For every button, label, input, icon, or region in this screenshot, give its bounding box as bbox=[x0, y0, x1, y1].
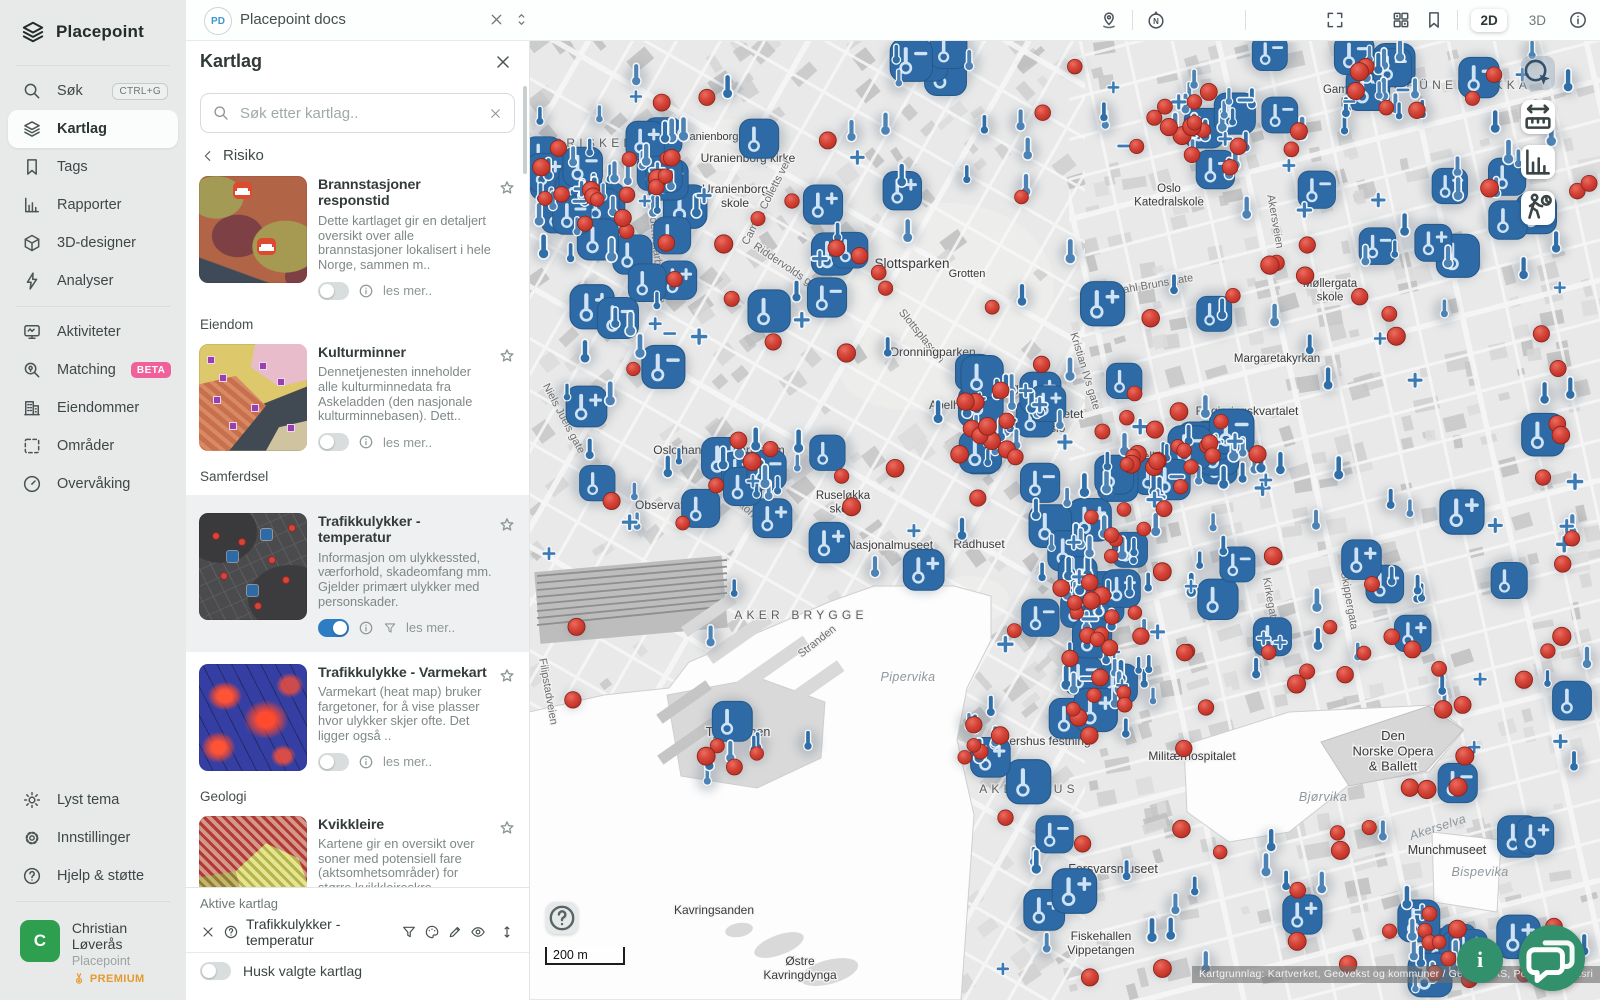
accident-marker-badge[interactable] bbox=[803, 185, 842, 224]
accident-marker-dot[interactable] bbox=[1261, 645, 1276, 660]
accident-marker-dot[interactable] bbox=[1128, 606, 1142, 620]
info-icon[interactable] bbox=[1568, 10, 1588, 30]
remove-layer-icon[interactable] bbox=[200, 924, 216, 940]
accident-marker-dot[interactable] bbox=[1515, 671, 1532, 688]
sidebar-item-matching[interactable]: MatchingBETA bbox=[8, 351, 178, 389]
accident-marker-dot[interactable] bbox=[533, 159, 550, 176]
active-layer-row[interactable]: Trafikkulykker - temperatur bbox=[200, 919, 515, 945]
accident-marker-dot[interactable] bbox=[1184, 460, 1199, 475]
accident-marker-dot[interactable] bbox=[1284, 142, 1299, 157]
accident-marker-badge[interactable] bbox=[1491, 562, 1527, 598]
accident-marker-badge[interactable] bbox=[642, 345, 685, 388]
accident-marker-badge[interactable] bbox=[1022, 599, 1059, 636]
accident-marker-dot[interactable] bbox=[1035, 105, 1051, 121]
accident-marker-dot[interactable] bbox=[1153, 960, 1171, 978]
sidebar-item-label: Kartlag bbox=[57, 121, 107, 137]
accident-marker-dot[interactable] bbox=[1081, 727, 1098, 744]
accident-marker-dot[interactable] bbox=[1290, 882, 1306, 898]
accident-marker-dot[interactable] bbox=[1156, 501, 1172, 517]
accident-marker-badge[interactable] bbox=[1052, 869, 1096, 913]
accident-marker-dot[interactable] bbox=[1213, 845, 1227, 859]
accident-marker-badge[interactable] bbox=[1252, 40, 1287, 71]
accident-marker-dot[interactable] bbox=[622, 152, 637, 167]
accident-marker-dot[interactable] bbox=[1550, 360, 1566, 376]
accident-marker-dot[interactable] bbox=[554, 187, 570, 203]
accident-marker-dot[interactable] bbox=[1350, 63, 1368, 81]
info-fab[interactable]: i bbox=[1457, 937, 1503, 983]
accident-marker-dot[interactable] bbox=[1142, 309, 1160, 327]
accident-marker-dot[interactable] bbox=[1288, 932, 1306, 950]
accident-marker-dot[interactable] bbox=[1401, 779, 1418, 796]
accident-marker-badge[interactable] bbox=[807, 278, 846, 317]
accident-marker-dot[interactable] bbox=[1127, 386, 1142, 401]
accident-marker-dot[interactable] bbox=[1362, 820, 1376, 834]
layer-card-wrap: Trafikkulykke - VarmekartVarmekart (heat… bbox=[186, 664, 529, 773]
category-label: Risiko bbox=[223, 147, 264, 164]
workspace-chip[interactable]: PD Placepoint docs bbox=[186, 0, 530, 40]
accident-marker-badge[interactable] bbox=[809, 522, 849, 562]
accident-marker-dot[interactable] bbox=[578, 216, 593, 231]
print-icon[interactable]: undefined bbox=[1259, 10, 1279, 30]
svg-text:Katedralskole: Katedralskole bbox=[1134, 197, 1204, 209]
accident-marker-dot[interactable] bbox=[1119, 410, 1134, 425]
accident-marker-dot[interactable] bbox=[979, 417, 997, 435]
divider bbox=[16, 65, 170, 66]
toggle-knob bbox=[320, 284, 334, 298]
les-mer-link[interactable]: les mer.. bbox=[383, 754, 432, 769]
accident-marker-badge[interactable] bbox=[753, 499, 792, 538]
accident-marker-dot[interactable] bbox=[1387, 327, 1405, 345]
avatar[interactable]: C bbox=[20, 920, 60, 962]
panel-title: Kartlag bbox=[200, 51, 262, 72]
accident-marker-dot[interactable] bbox=[667, 271, 683, 287]
sidebar-item-aktiviteter[interactable]: Aktiviteter bbox=[8, 313, 178, 351]
accident-marker-dot[interactable] bbox=[614, 209, 631, 226]
accident-marker-badge[interactable] bbox=[1553, 681, 1592, 720]
eye-icon[interactable] bbox=[470, 924, 486, 940]
accident-marker-dot[interactable] bbox=[1067, 59, 1082, 74]
accident-marker-dot[interactable] bbox=[1290, 123, 1307, 140]
workspace-avatar[interactable]: PD bbox=[204, 7, 232, 35]
accident-marker-dot[interactable] bbox=[1214, 414, 1229, 429]
accident-marker-dot[interactable] bbox=[1066, 702, 1080, 716]
accident-marker-dot[interactable] bbox=[676, 516, 690, 530]
pencil-icon[interactable] bbox=[447, 924, 463, 940]
accident-marker-badge[interactable] bbox=[1081, 282, 1125, 326]
accident-marker-dot[interactable] bbox=[1249, 446, 1266, 463]
clear-icon[interactable] bbox=[488, 106, 503, 121]
filter-icon[interactable] bbox=[401, 924, 417, 940]
accident-marker-dot[interactable] bbox=[1198, 700, 1214, 716]
category-back[interactable]: Risiko bbox=[200, 147, 515, 164]
accident-marker-badge[interactable] bbox=[748, 290, 790, 332]
layer-toggle[interactable] bbox=[318, 753, 349, 771]
qr-grid-icon[interactable] bbox=[1391, 10, 1411, 30]
sidebar-item-hjelp[interactable]: Hjelp & støtte bbox=[8, 857, 178, 895]
unfold-icon[interactable] bbox=[513, 11, 530, 28]
snapshot-icon[interactable]: undefined bbox=[1358, 10, 1378, 30]
accident-marker-dot[interactable] bbox=[1299, 237, 1315, 253]
accident-marker-dot[interactable] bbox=[1104, 528, 1119, 543]
accident-marker-dot[interactable] bbox=[1007, 624, 1021, 638]
layer-card[interactable]: Brannstasjoner responstidDette kartlaget… bbox=[199, 176, 516, 301]
user-plan-label: PREMIUM bbox=[90, 973, 145, 985]
accident-marker-dot[interactable] bbox=[724, 291, 739, 306]
les-mer-link[interactable]: les mer.. bbox=[406, 620, 455, 635]
user-profile[interactable]: C Christian Løverås Placepoint PREMIUM bbox=[0, 908, 186, 986]
fullscreen-icon[interactable] bbox=[1325, 10, 1345, 30]
accident-marker-dot[interactable] bbox=[1173, 479, 1188, 494]
toggle-knob bbox=[320, 435, 334, 449]
reorder-icon[interactable] bbox=[499, 924, 515, 940]
accident-marker-dot[interactable] bbox=[1184, 147, 1200, 163]
accident-marker-dot[interactable] bbox=[751, 211, 765, 225]
accident-marker-dot[interactable] bbox=[1205, 448, 1220, 463]
accident-marker-dot[interactable] bbox=[619, 187, 635, 203]
accident-marker-dot[interactable] bbox=[1357, 646, 1371, 660]
accident-marker-dot[interactable] bbox=[991, 727, 1009, 745]
accident-marker-dot[interactable] bbox=[1146, 421, 1163, 438]
accident-marker-dot[interactable] bbox=[1170, 403, 1188, 421]
accident-marker-dot[interactable] bbox=[603, 492, 620, 509]
map-label: Bispevika bbox=[1451, 865, 1508, 879]
accident-marker-dot[interactable] bbox=[763, 441, 778, 456]
accident-marker-dot[interactable] bbox=[1441, 951, 1456, 966]
accident-marker-dot[interactable] bbox=[1153, 563, 1171, 581]
accident-marker-dot[interactable] bbox=[730, 432, 747, 449]
sidebar-item-label: Tags bbox=[57, 159, 88, 175]
accident-marker-dot[interactable] bbox=[970, 490, 986, 506]
accident-marker-dot[interactable] bbox=[1081, 574, 1098, 591]
sidebar-item-overvaking[interactable]: Overvåking bbox=[8, 465, 178, 503]
compass-icon[interactable]: N bbox=[1146, 10, 1166, 30]
mode-3d-button[interactable]: 3D bbox=[1520, 9, 1555, 32]
accident-marker-dot[interactable] bbox=[1117, 697, 1132, 712]
accident-marker-dot[interactable] bbox=[1092, 669, 1109, 686]
search-icon bbox=[22, 81, 42, 101]
sidebar-item-label: Søk bbox=[57, 83, 83, 99]
close-icon[interactable] bbox=[493, 52, 513, 72]
accident-marker-dot[interactable] bbox=[1382, 924, 1396, 938]
accident-marker-dot[interactable] bbox=[1200, 83, 1217, 100]
accident-marker-badge[interactable] bbox=[1198, 579, 1238, 619]
accident-marker-dot[interactable] bbox=[1160, 118, 1177, 135]
accident-marker-dot[interactable] bbox=[1173, 820, 1191, 838]
accident-marker-dot[interactable] bbox=[1081, 969, 1098, 986]
accident-marker-dot[interactable] bbox=[697, 747, 715, 765]
accident-marker-dot[interactable] bbox=[1137, 522, 1151, 536]
locate-icon[interactable] bbox=[1099, 10, 1119, 30]
accident-marker-dot[interactable] bbox=[1176, 644, 1193, 661]
accident-marker-dot[interactable] bbox=[998, 810, 1014, 826]
accident-marker-dot[interactable] bbox=[1261, 256, 1279, 274]
map-canvas[interactable]: BRISKEBYUranienborgparkenUranienborg kir… bbox=[529, 40, 1600, 1000]
sidebar-item-analyser[interactable]: Analyser bbox=[8, 262, 178, 300]
accident-marker-dot[interactable] bbox=[1067, 595, 1082, 610]
map-help-button[interactable] bbox=[546, 902, 578, 934]
accident-marker-dot[interactable] bbox=[1432, 935, 1446, 949]
accident-marker-dot[interactable] bbox=[765, 334, 781, 350]
accident-marker-dot[interactable] bbox=[871, 265, 886, 280]
accident-marker-dot[interactable] bbox=[1481, 179, 1499, 197]
accident-dot bbox=[255, 603, 261, 609]
user-plan: PREMIUM bbox=[72, 972, 176, 986]
accident-marker-dot[interactable] bbox=[1351, 288, 1367, 304]
accident-marker-dot[interactable] bbox=[1226, 288, 1241, 303]
accident-marker-dot[interactable] bbox=[743, 453, 761, 471]
accident-marker-dot[interactable] bbox=[1187, 95, 1202, 110]
sidebar-item-tags[interactable]: Tags bbox=[8, 148, 178, 186]
accident-marker-dot[interactable] bbox=[1133, 628, 1149, 644]
accident-marker-dot[interactable] bbox=[1033, 356, 1049, 372]
accident-marker-dot[interactable] bbox=[1090, 632, 1105, 647]
accident-marker-dot[interactable] bbox=[1149, 453, 1165, 469]
accident-marker bbox=[261, 529, 272, 540]
accident-marker-dot[interactable] bbox=[1418, 780, 1436, 798]
heritage-marker bbox=[277, 378, 285, 386]
mode-2d-button[interactable]: 2D bbox=[1471, 9, 1506, 32]
accident-marker-dot[interactable] bbox=[658, 235, 675, 252]
accident-marker-dot[interactable] bbox=[992, 382, 1009, 399]
accident-marker-dot[interactable] bbox=[590, 193, 604, 207]
accident-marker-dot[interactable] bbox=[1176, 740, 1192, 756]
chat-fab[interactable] bbox=[1519, 925, 1585, 991]
accident-marker-dot[interactable] bbox=[951, 445, 969, 463]
accident-marker-badge[interactable] bbox=[930, 40, 967, 69]
layer-card[interactable]: Trafikkulykke - VarmekartVarmekart (heat… bbox=[199, 664, 516, 773]
accident-marker-dot[interactable] bbox=[785, 194, 800, 209]
zoom-out-icon[interactable]: undefined bbox=[1212, 10, 1232, 30]
favorite-star-icon[interactable] bbox=[498, 347, 516, 365]
accident-marker-dot[interactable] bbox=[1296, 267, 1313, 284]
accident-marker-badge[interactable] bbox=[712, 701, 752, 741]
accident-marker-dot[interactable] bbox=[1379, 100, 1394, 115]
accident-marker-dot[interactable] bbox=[828, 240, 845, 257]
accident-marker-dot[interactable] bbox=[1384, 629, 1400, 645]
sidebar-item-3d-designer[interactable]: 3D-designer bbox=[8, 224, 178, 262]
accident-marker-badge[interactable] bbox=[566, 386, 607, 427]
accident-marker-dot[interactable] bbox=[1105, 610, 1120, 625]
close-icon[interactable] bbox=[488, 11, 505, 28]
accident-marker-dot[interactable] bbox=[985, 300, 999, 314]
accident-marker-dot[interactable] bbox=[886, 459, 904, 477]
favorite-star-icon[interactable] bbox=[498, 179, 516, 197]
accident-marker-dot[interactable] bbox=[1015, 190, 1029, 204]
bookmark-icon[interactable] bbox=[1424, 10, 1444, 30]
sidebar-item-innstillinger[interactable]: Innstillinger bbox=[8, 819, 178, 857]
heritage-marker bbox=[219, 374, 227, 382]
svg-text:Kavringdynga: Kavringdynga bbox=[763, 968, 837, 982]
accident-marker-badge[interactable] bbox=[1342, 540, 1382, 580]
accident-marker-dot[interactable] bbox=[1104, 549, 1118, 563]
layer-description: Varmekart (heat map) bruker fargetoner, … bbox=[318, 685, 492, 744]
accident-marker-dot[interactable] bbox=[1581, 175, 1597, 191]
accident-marker-dot[interactable] bbox=[1564, 531, 1579, 546]
layer-search-input[interactable] bbox=[238, 104, 488, 123]
accident-marker-badge[interactable] bbox=[810, 435, 845, 470]
accident-marker-dot[interactable] bbox=[851, 247, 867, 263]
accident-marker-dot[interactable] bbox=[1323, 620, 1337, 634]
accident-marker-dot[interactable] bbox=[999, 413, 1015, 429]
accident-marker-badge[interactable] bbox=[1440, 490, 1484, 534]
accident-marker-dot[interactable] bbox=[1264, 547, 1282, 565]
layer-card[interactable]: KulturminnerDennetjenesten inneholder al… bbox=[199, 344, 516, 453]
accident-marker-dot[interactable] bbox=[843, 498, 861, 516]
accident-marker-dot[interactable] bbox=[1409, 102, 1425, 118]
accident-marker-dot[interactable] bbox=[699, 89, 715, 105]
les-mer-link[interactable]: les mer.. bbox=[383, 435, 432, 450]
info-icon[interactable] bbox=[358, 754, 374, 770]
palette-icon[interactable] bbox=[424, 924, 440, 940]
accident-marker-dot[interactable] bbox=[1553, 627, 1571, 645]
accident-marker-dot[interactable] bbox=[1117, 502, 1131, 516]
map-tool-measure[interactable] bbox=[1521, 100, 1555, 134]
accident-marker-dot[interactable] bbox=[1087, 688, 1101, 702]
sidebar-item-label: Eiendommer bbox=[57, 400, 139, 416]
sidebar-item-sok[interactable]: SøkCTRL+G bbox=[8, 72, 178, 110]
accident-marker-dot[interactable] bbox=[1448, 920, 1466, 938]
accident-marker-dot[interactable] bbox=[958, 750, 972, 764]
info-icon[interactable] bbox=[358, 620, 374, 636]
scrollbar[interactable] bbox=[523, 86, 527, 174]
accident-marker-dot[interactable] bbox=[1120, 457, 1134, 471]
layers-logo-icon bbox=[20, 19, 46, 45]
layer-search[interactable] bbox=[200, 93, 515, 133]
favorite-star-icon[interactable] bbox=[498, 516, 516, 534]
favorite-star-icon[interactable] bbox=[498, 667, 516, 685]
accident-marker-dot[interactable] bbox=[1084, 510, 1098, 524]
accident-marker-dot[interactable] bbox=[663, 149, 680, 166]
sidebar-item-lyst-tema[interactable]: Lyst tema bbox=[8, 781, 178, 819]
accident-marker-dot[interactable] bbox=[1130, 139, 1144, 153]
accident-marker-dot[interactable] bbox=[1053, 580, 1070, 597]
accident-marker-badge[interactable] bbox=[1517, 817, 1554, 854]
accident-marker-dot[interactable] bbox=[653, 94, 670, 111]
accident-marker-dot[interactable] bbox=[538, 191, 552, 205]
accident-marker-dot[interactable] bbox=[1432, 661, 1447, 676]
les-mer-link[interactable]: les mer.. bbox=[383, 283, 432, 298]
sidebar-item-rapporter[interactable]: Rapporter bbox=[8, 186, 178, 224]
accident-marker-dot[interactable] bbox=[1552, 426, 1570, 444]
accident-marker-dot[interactable] bbox=[1330, 826, 1345, 841]
accident-marker-dot[interactable] bbox=[1456, 747, 1474, 765]
accident-marker-dot[interactable] bbox=[1449, 778, 1467, 796]
accident-marker-dot[interactable] bbox=[568, 618, 585, 635]
accident-marker-dot[interactable] bbox=[1230, 138, 1247, 155]
accident-marker-dot[interactable] bbox=[750, 747, 764, 761]
accident-marker-dot[interactable] bbox=[658, 169, 673, 184]
heritage-marker bbox=[287, 424, 295, 432]
accident-marker-dot[interactable] bbox=[1554, 556, 1570, 572]
accident-marker-dot[interactable] bbox=[1147, 110, 1162, 125]
accident-marker-dot[interactable] bbox=[726, 759, 742, 775]
accident-marker-badge[interactable] bbox=[903, 550, 944, 591]
map-tool-cursor[interactable] bbox=[1521, 56, 1555, 90]
accident-marker-badge[interactable] bbox=[1036, 816, 1073, 853]
accident-marker-dot[interactable] bbox=[627, 362, 641, 376]
accident-marker-dot[interactable] bbox=[1095, 424, 1110, 439]
accident-marker-dot[interactable] bbox=[1541, 644, 1556, 659]
accident-marker-dot[interactable] bbox=[709, 478, 724, 493]
heritage-marker bbox=[207, 356, 215, 364]
accident-marker-dot[interactable] bbox=[1422, 906, 1437, 921]
accident-marker-dot[interactable] bbox=[715, 235, 733, 253]
accident-marker-badge[interactable] bbox=[628, 264, 666, 302]
accident-marker-dot[interactable] bbox=[1364, 577, 1379, 592]
layer-card-list: Brannstasjoner responstidDette kartlaget… bbox=[186, 176, 529, 925]
accident-marker-dot[interactable] bbox=[819, 132, 836, 149]
accident-marker-dot[interactable] bbox=[1062, 650, 1078, 666]
accident-marker-dot[interactable] bbox=[1222, 159, 1238, 175]
layer-help-icon[interactable] bbox=[223, 924, 239, 940]
zoom-in-icon[interactable]: undefined bbox=[1179, 10, 1199, 30]
accident-marker-dot[interactable] bbox=[1465, 91, 1479, 105]
accident-marker-dot[interactable] bbox=[1083, 592, 1100, 609]
remember-layers-toggle[interactable] bbox=[200, 962, 231, 980]
accident-marker-dot[interactable] bbox=[1535, 470, 1550, 485]
accident-marker-dot[interactable] bbox=[1287, 675, 1305, 693]
accident-marker-dot[interactable] bbox=[834, 469, 849, 484]
accident-marker-badge[interactable] bbox=[1007, 760, 1051, 804]
accident-marker-dot[interactable] bbox=[550, 140, 566, 156]
accident-marker-dot[interactable] bbox=[1187, 115, 1202, 130]
accident-marker-dot[interactable] bbox=[1454, 696, 1471, 713]
accident-marker-dot[interactable] bbox=[1404, 641, 1421, 658]
accident-marker-dot[interactable] bbox=[837, 344, 855, 362]
favorite-star-icon[interactable] bbox=[498, 819, 516, 837]
accident-marker-dot[interactable] bbox=[1337, 666, 1354, 683]
accident-marker-dot[interactable] bbox=[1347, 82, 1364, 99]
sidebar-item-eiendommer[interactable]: Eiendommer bbox=[8, 389, 178, 427]
accident-marker-dot[interactable] bbox=[1008, 449, 1024, 465]
visibility-icon[interactable]: undefined bbox=[1292, 10, 1312, 30]
info-icon[interactable] bbox=[358, 283, 374, 299]
accident-marker-dot[interactable] bbox=[966, 717, 982, 733]
active-layers-bar: Aktive kartlag Trafikkulykker - temperat… bbox=[186, 887, 529, 1000]
accident-marker-dot[interactable] bbox=[957, 393, 974, 410]
layer-toggle[interactable] bbox=[318, 619, 349, 637]
accident-marker-dot[interactable] bbox=[565, 692, 581, 708]
sidebar-item-kartlag[interactable]: Kartlag bbox=[8, 110, 178, 148]
filter-icon[interactable] bbox=[383, 620, 397, 636]
accident-marker-dot[interactable] bbox=[1074, 836, 1090, 852]
accident-marker-dot[interactable] bbox=[1533, 326, 1549, 342]
layer-card-body: Trafikkulykke - VarmekartVarmekart (heat… bbox=[318, 664, 516, 772]
accident-marker-badge[interactable] bbox=[1021, 463, 1060, 502]
toggle-knob bbox=[333, 621, 347, 635]
layer-toggle[interactable] bbox=[318, 433, 349, 451]
accident-marker-badge[interactable] bbox=[1283, 895, 1322, 934]
divider bbox=[186, 952, 529, 953]
accident-marker-dot[interactable] bbox=[1382, 306, 1397, 321]
accident-marker-dot[interactable] bbox=[967, 739, 981, 753]
layer-toggle[interactable] bbox=[318, 282, 349, 300]
info-icon[interactable] bbox=[358, 434, 374, 450]
layers-icon bbox=[22, 119, 42, 139]
accident-marker-dot[interactable] bbox=[1177, 443, 1192, 458]
accident-marker-dot[interactable] bbox=[1434, 701, 1452, 719]
accident-marker-dot[interactable] bbox=[1331, 841, 1349, 859]
map-tool-chart[interactable] bbox=[1521, 145, 1555, 179]
info-fab-label: i bbox=[1477, 947, 1483, 973]
sidebar-item-omrader[interactable]: Områder bbox=[8, 427, 178, 465]
accident-marker-dot[interactable] bbox=[1486, 67, 1502, 83]
heritage-marker bbox=[259, 362, 267, 370]
map-tool-walk[interactable] bbox=[1521, 191, 1555, 225]
layer-card[interactable]: Trafikkulykker - temperaturInformasjon o… bbox=[199, 513, 516, 638]
accident-marker-dot[interactable] bbox=[878, 281, 892, 295]
accident-marker-badge[interactable] bbox=[740, 119, 779, 158]
